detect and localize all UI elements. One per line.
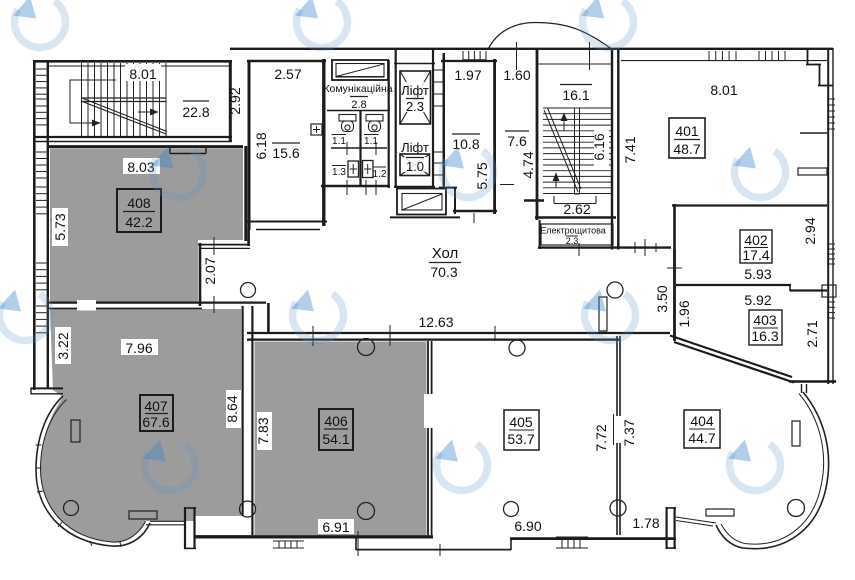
svg-text:1.96: 1.96 bbox=[676, 300, 692, 327]
svg-text:7.96: 7.96 bbox=[125, 340, 152, 356]
svg-text:403: 403 bbox=[753, 312, 777, 328]
svg-text:70.3: 70.3 bbox=[430, 264, 457, 280]
svg-text:42.2: 42.2 bbox=[125, 214, 152, 230]
svg-text:1.2: 1.2 bbox=[373, 169, 387, 180]
svg-text:7.83: 7.83 bbox=[255, 417, 271, 444]
svg-text:7.72: 7.72 bbox=[593, 424, 609, 451]
svg-text:2.3: 2.3 bbox=[566, 236, 579, 246]
svg-text:406: 406 bbox=[324, 413, 348, 429]
svg-text:404: 404 bbox=[690, 413, 714, 429]
svg-text:2.71: 2.71 bbox=[804, 320, 820, 347]
svg-text:7.6: 7.6 bbox=[507, 133, 527, 149]
svg-text:16.1: 16.1 bbox=[562, 87, 589, 103]
svg-text:1.97: 1.97 bbox=[454, 67, 481, 83]
svg-text:8.01: 8.01 bbox=[129, 66, 156, 82]
svg-text:Ліфт: Ліфт bbox=[401, 83, 429, 98]
svg-text:67.6: 67.6 bbox=[142, 414, 169, 430]
svg-text:408: 408 bbox=[127, 195, 151, 211]
svg-text:2.57: 2.57 bbox=[274, 66, 301, 82]
svg-text:3.22: 3.22 bbox=[55, 332, 71, 359]
svg-text:16.3: 16.3 bbox=[751, 328, 778, 344]
svg-text:6.90: 6.90 bbox=[514, 518, 541, 534]
svg-text:5.92: 5.92 bbox=[744, 292, 771, 308]
svg-text:Хол: Хол bbox=[432, 245, 459, 262]
svg-text:6.91: 6.91 bbox=[322, 519, 349, 535]
svg-text:407: 407 bbox=[144, 398, 168, 414]
svg-text:1.78: 1.78 bbox=[632, 515, 659, 531]
svg-text:53.7: 53.7 bbox=[507, 431, 534, 447]
svg-text:7.41: 7.41 bbox=[622, 136, 638, 163]
svg-text:Комунікаційна: Комунікаційна bbox=[323, 83, 392, 95]
svg-text:1.0: 1.0 bbox=[406, 159, 424, 174]
svg-text:3.50: 3.50 bbox=[654, 285, 670, 312]
svg-text:5.93: 5.93 bbox=[744, 266, 771, 282]
svg-text:405: 405 bbox=[509, 414, 533, 430]
svg-text:2.94: 2.94 bbox=[802, 217, 818, 244]
svg-text:1.1: 1.1 bbox=[332, 136, 346, 147]
svg-text:22.8: 22.8 bbox=[182, 104, 209, 120]
svg-text:15.6: 15.6 bbox=[272, 145, 299, 161]
svg-text:8.64: 8.64 bbox=[224, 395, 240, 422]
svg-text:6.16: 6.16 bbox=[591, 133, 607, 160]
svg-text:17.4: 17.4 bbox=[742, 247, 769, 263]
svg-text:12.63: 12.63 bbox=[418, 314, 453, 330]
svg-text:48.7: 48.7 bbox=[673, 141, 700, 157]
svg-text:402: 402 bbox=[744, 232, 768, 248]
svg-text:7.37: 7.37 bbox=[621, 419, 637, 446]
svg-text:2.8: 2.8 bbox=[351, 99, 366, 111]
svg-text:4.74: 4.74 bbox=[520, 151, 536, 178]
svg-text:401: 401 bbox=[675, 123, 699, 139]
svg-text:6.18: 6.18 bbox=[253, 132, 269, 159]
svg-text:54.1: 54.1 bbox=[322, 431, 349, 447]
svg-text:1.3: 1.3 bbox=[332, 167, 346, 178]
svg-text:5.73: 5.73 bbox=[52, 213, 68, 240]
svg-text:2.92: 2.92 bbox=[227, 87, 243, 114]
svg-text:8.01: 8.01 bbox=[710, 82, 737, 98]
svg-text:44.7: 44.7 bbox=[688, 430, 715, 446]
svg-text:2.3: 2.3 bbox=[406, 99, 424, 114]
svg-text:2.07: 2.07 bbox=[202, 257, 218, 284]
svg-text:2.62: 2.62 bbox=[563, 201, 590, 217]
svg-text:Електрощитова: Електрощитова bbox=[540, 226, 606, 236]
svg-text:Ліфт: Ліфт bbox=[401, 140, 429, 155]
svg-text:1.60: 1.60 bbox=[503, 67, 530, 83]
